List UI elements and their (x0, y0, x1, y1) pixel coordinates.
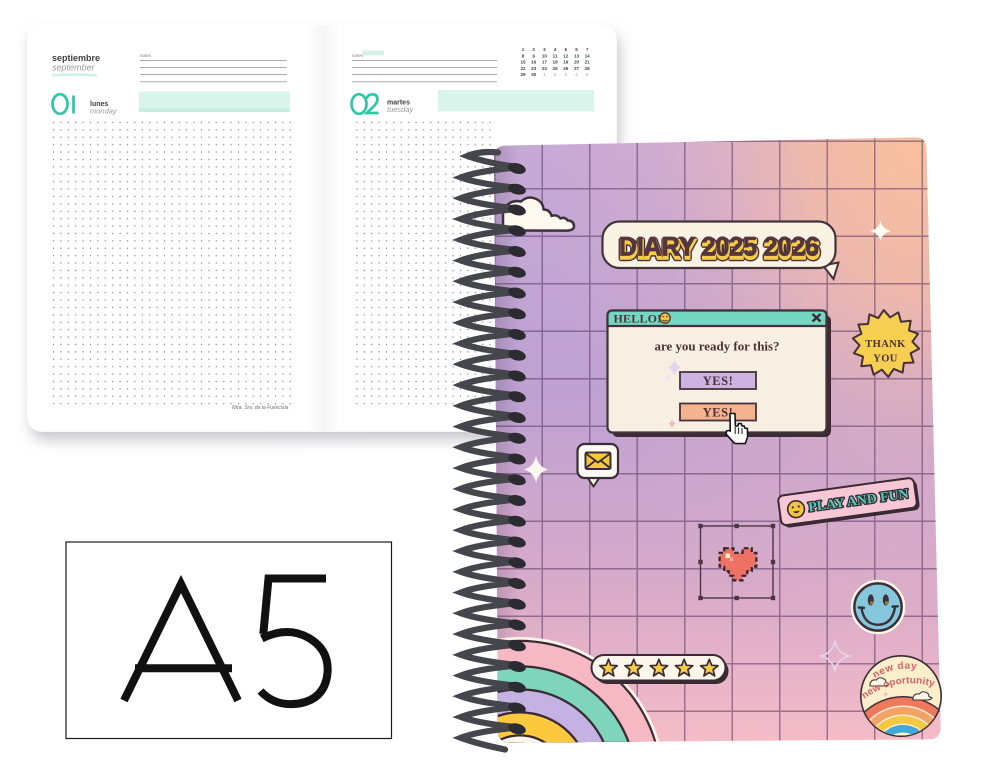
svg-text:YES!: YES! (703, 374, 733, 388)
svg-text:23: 23 (531, 66, 537, 71)
svg-text:27: 27 (574, 66, 580, 71)
svg-text:1: 1 (543, 72, 546, 77)
svg-text:THANK: THANK (865, 339, 906, 350)
svg-text:20: 20 (574, 60, 580, 65)
svg-text:Ntra. Sra. de la Fuencisla: Ntra. Sra. de la Fuencisla (232, 405, 289, 411)
svg-text:monday: monday (90, 107, 118, 116)
svg-text:15: 15 (520, 60, 526, 65)
svg-text:YES!: YES! (703, 406, 733, 420)
svg-text:2: 2 (554, 72, 557, 77)
svg-text:9: 9 (532, 53, 535, 58)
svg-text:11: 11 (553, 53, 558, 58)
svg-text:3: 3 (565, 72, 568, 77)
svg-text:september: september (52, 63, 96, 73)
svg-text:notes: notes (140, 53, 152, 58)
svg-text:16: 16 (531, 60, 537, 65)
svg-text:are you ready for this?: are you ready for this? (655, 339, 780, 354)
svg-text:25: 25 (553, 66, 559, 71)
svg-text:notes: notes (352, 53, 364, 58)
svg-text:13: 13 (574, 53, 580, 58)
svg-text:12: 12 (563, 53, 569, 58)
svg-text:19: 19 (563, 60, 569, 65)
svg-text:3: 3 (543, 47, 546, 52)
svg-text:7: 7 (586, 47, 589, 52)
svg-text:21: 21 (585, 60, 591, 65)
svg-text:28: 28 (585, 66, 591, 71)
svg-text:6: 6 (575, 47, 578, 52)
svg-text:1: 1 (522, 47, 525, 52)
svg-text:tuesday: tuesday (387, 105, 415, 114)
svg-text:29: 29 (520, 72, 526, 77)
svg-text:10: 10 (542, 53, 548, 58)
svg-text:30: 30 (531, 72, 537, 77)
svg-text:YOU: YOU (873, 354, 898, 365)
svg-text:26: 26 (563, 66, 569, 71)
svg-text:2: 2 (532, 47, 535, 52)
svg-text:HELLO!: HELLO! (614, 312, 662, 326)
svg-text:septiembre: septiembre (52, 53, 100, 63)
svg-text:5: 5 (586, 72, 589, 77)
svg-text:17: 17 (542, 60, 548, 65)
svg-text:4: 4 (554, 47, 557, 52)
svg-text:DIARY 2025 2026: DIARY 2025 2026 (619, 232, 819, 262)
svg-text:18: 18 (553, 60, 559, 65)
svg-text:5: 5 (565, 47, 568, 52)
svg-text:22: 22 (520, 66, 526, 71)
svg-text:4: 4 (575, 72, 578, 77)
svg-text:8: 8 (522, 53, 525, 58)
svg-text:24: 24 (542, 66, 548, 71)
svg-text:14: 14 (585, 53, 591, 58)
